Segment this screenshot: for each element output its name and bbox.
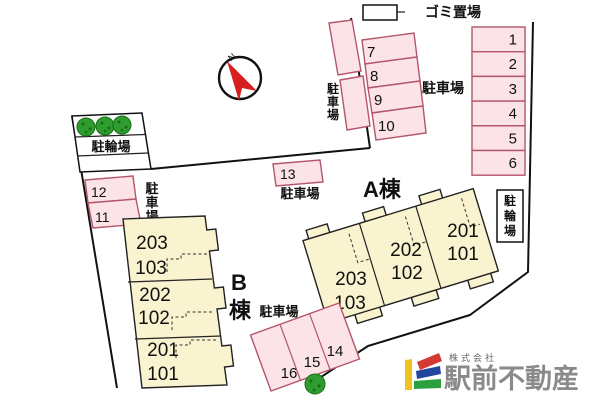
svg-text:駐: 駐: [327, 81, 339, 96]
bicycle-parking-right: 駐 輪 場: [497, 190, 523, 242]
bicycle-parking-left: 駐輪場: [72, 113, 151, 172]
svg-text:駐: 駐: [145, 181, 158, 196]
parking-space-10-label: 10: [378, 118, 395, 135]
parking-south-lot-label: 駐車場: [259, 304, 298, 319]
parking-space-14-label: 14: [327, 343, 344, 360]
tree-icon: [113, 116, 131, 134]
parking-space-6: [472, 151, 525, 176]
parking-space-12-label: 12: [91, 184, 107, 200]
parking-space-1: [472, 27, 525, 52]
svg-text:車: 車: [145, 195, 158, 210]
garbage-label: ゴミ置場: [425, 4, 481, 20]
building-a-unit-102-label: 102: [391, 263, 423, 284]
property-boundary-top-diagonal: [151, 148, 370, 169]
parking-upper-lot-label: 駐車場: [422, 80, 464, 96]
parking-space-7-label: 7: [367, 44, 375, 61]
parking-east-column: 1 2 3 4 5 6: [472, 27, 525, 175]
svg-text:車: 車: [327, 94, 339, 109]
building-a-unit-101-label: 101: [447, 244, 479, 265]
parking-space-2: [472, 52, 525, 77]
parking-13-lot-label: 駐車場: [280, 186, 319, 201]
building-b-unit-103-label: 103: [135, 258, 167, 279]
tree-icon: [305, 374, 325, 394]
parking-space-13-label: 13: [280, 166, 296, 182]
company-logo: 株式会社 駅前不動産: [405, 352, 579, 394]
parking-13-area: 13 駐車場: [273, 160, 323, 201]
tree-icon: [77, 118, 95, 136]
parking-south: 16 15 14 駐車場: [251, 303, 360, 394]
building-a-unit-203-label: 203: [335, 269, 367, 290]
bicycle-parking-left-label: 駐輪場: [91, 139, 130, 154]
parking-upper-left-lot-label: 駐 車 場: [327, 81, 339, 122]
parking-space-15-label: 15: [304, 354, 321, 371]
building-b-unit-201-label: 201: [147, 340, 179, 361]
building-b-unit-102-label: 102: [138, 308, 170, 329]
svg-text:棟: 棟: [229, 298, 252, 323]
parking-space-unnumbered: [329, 20, 361, 75]
parking-space-6-label: 6: [509, 155, 517, 172]
logo-mark-icon: [405, 353, 442, 390]
parking-space-9-label: 9: [374, 92, 382, 109]
parking-space-3: [472, 76, 525, 101]
svg-text:駐: 駐: [504, 193, 516, 208]
parking-upper-left: 駐 車 場: [327, 20, 370, 130]
compass: N: [219, 51, 261, 101]
parking-space-3-label: 3: [509, 81, 517, 98]
parking-upper: 7 8 9 10 駐車場: [362, 33, 464, 140]
svg-text:輪: 輪: [504, 208, 517, 223]
parking-space-unnumbered: [340, 76, 370, 130]
logo-company-name: 駅前不動産: [444, 363, 579, 394]
building-a-name: A棟: [363, 177, 402, 202]
garbage-area: ゴミ置場: [363, 4, 481, 20]
parking-space-2-label: 2: [509, 56, 517, 73]
svg-text:B: B: [231, 270, 247, 295]
parking-space-1-label: 1: [509, 32, 517, 49]
parking-space-11-label: 11: [95, 209, 110, 225]
svg-text:場: 場: [327, 107, 339, 122]
svg-text:場: 場: [504, 223, 516, 238]
tree-icon: [96, 117, 114, 135]
parking-space-8-label: 8: [370, 68, 378, 85]
parking-space-5-label: 5: [509, 130, 517, 147]
parking-space-5: [472, 126, 525, 151]
site-plan: ゴミ置場 N 駐輪場 12 11 駐 車 場: [0, 0, 600, 400]
parking-space-4: [472, 101, 525, 126]
garbage-box: [363, 5, 397, 20]
building-b-name: B 棟: [229, 270, 252, 323]
parking-space-16-label: 16: [281, 365, 298, 382]
site-plan-svg: ゴミ置場 N 駐輪場 12 11 駐 車 場: [0, 0, 600, 400]
building-b-unit-202-label: 202: [139, 285, 171, 306]
building-a-unit-201-label: 201: [447, 221, 479, 242]
building-b: 203 103 202 102 201 101 B 棟: [123, 216, 252, 388]
building-a-unit-202-label: 202: [390, 240, 422, 261]
logo-company-type: 株式会社: [449, 352, 497, 363]
building-b-unit-203-label: 203: [136, 233, 168, 254]
tree-icons-row: [77, 116, 131, 136]
building-b-unit-101-label: 101: [147, 364, 179, 385]
parking-space-4-label: 4: [509, 106, 517, 123]
